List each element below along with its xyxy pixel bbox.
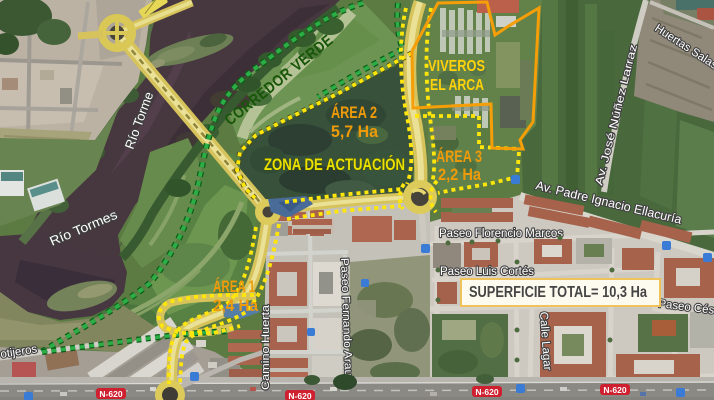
svg-text:ÁREA 3: ÁREA 3 <box>436 147 482 166</box>
svg-text:2,4 Ha: 2,4 Ha <box>213 297 259 315</box>
svg-text:2,2 Ha: 2,2 Ha <box>438 166 482 184</box>
svg-text:ÁREA 2: ÁREA 2 <box>331 103 377 122</box>
svg-text:ÁREA 1: ÁREA 1 <box>213 277 255 296</box>
svg-text:N-620: N-620 <box>603 385 626 395</box>
svg-text:ZONA DE ACTUACIÓN: ZONA DE ACTUACIÓN <box>264 155 405 174</box>
svg-text:SUPERFICIE TOTAL= 10,3 Ha: SUPERFICIE TOTAL= 10,3 Ha <box>469 284 647 301</box>
svg-text:N-620: N-620 <box>99 389 122 399</box>
svg-text:EL ARCA: EL ARCA <box>430 77 484 94</box>
svg-text:Paseo Florencio Marcos: Paseo Florencio Marcos <box>439 228 563 240</box>
svg-text:5,7 Ha: 5,7 Ha <box>331 123 379 141</box>
svg-text:Camino Huerta: Camino Huerta <box>260 304 272 390</box>
svg-text:Paseo Luis Cortés: Paseo Luis Cortés <box>440 266 534 278</box>
svg-text:N-620: N-620 <box>475 387 498 397</box>
svg-text:VIVEROS: VIVEROS <box>428 58 485 75</box>
svg-text:N-620: N-620 <box>288 391 311 400</box>
